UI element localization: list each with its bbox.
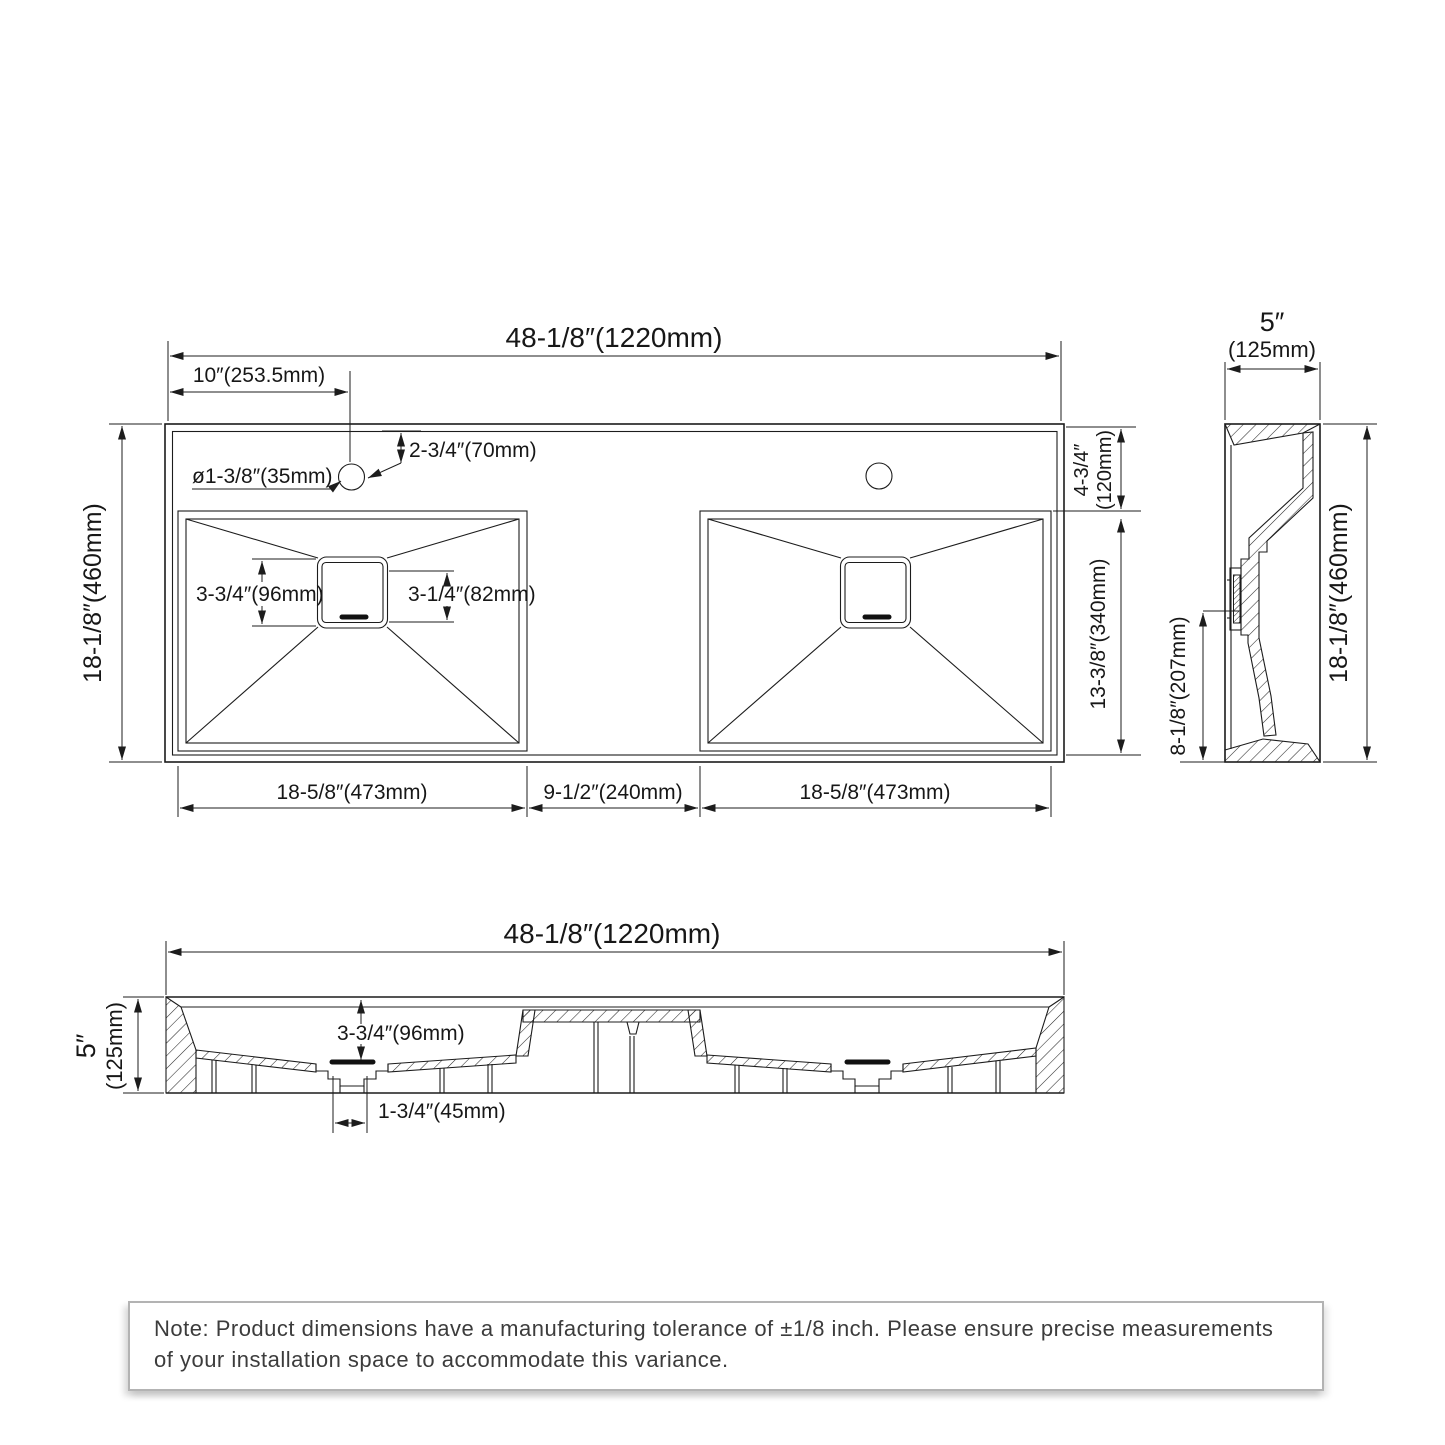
deck-depth-in-label: 4-3/4″ <box>1071 444 1093 497</box>
side-width-in-label: 5″ <box>1260 307 1285 337</box>
side-wall-section <box>1241 432 1313 736</box>
left-basin-width-label: 18-5/8″(473mm) <box>277 781 428 804</box>
front-basin-depth-label: 3-3/4″(96mm) <box>337 1022 465 1045</box>
front-left-wall <box>166 997 196 1093</box>
front-right-wall <box>1036 997 1064 1093</box>
right-basin <box>700 463 1051 751</box>
front-dimension-lines <box>138 952 1062 1123</box>
plan-overall-width-label: 48-1/8″(1220mm) <box>506 322 723 353</box>
side-bottom-rim <box>1225 739 1320 762</box>
deck-depth-mm-label: (120mm) <box>1094 430 1116 510</box>
front-center-divider <box>516 1010 707 1093</box>
tolerance-note-text: Note: Product dimensions have a manufact… <box>154 1316 1273 1372</box>
drain-inner-label: 3-1/4″(82mm) <box>408 583 536 606</box>
front-height-in-label: 5″ <box>71 1033 101 1058</box>
left-basin <box>178 464 527 751</box>
right-basin-width-label: 18-5/8″(473mm) <box>800 781 951 804</box>
plan-depth-label: 18-1/8″(460mm) <box>79 503 107 683</box>
side-section-view: 5″ (125mm) 18-1/8″(460mm) 8-1/8″(207mm) <box>1167 307 1377 762</box>
right-faucet-hole <box>866 463 892 489</box>
side-drain-height-label: 8-1/8″(207mm) <box>1167 616 1190 755</box>
hole-diameter-label: ø1-3/8″(35mm) <box>192 465 332 488</box>
front-height-mm-label: (125mm) <box>102 1002 127 1090</box>
front-drain-width-label: 1-3/4″(45mm) <box>378 1100 506 1123</box>
front-overall-width-label: 48-1/8″(1220mm) <box>504 918 721 949</box>
plan-extension-lines <box>109 341 1141 817</box>
tolerance-note: Note: Product dimensions have a manufact… <box>128 1301 1324 1391</box>
side-width-mm-label: (125mm) <box>1228 337 1316 362</box>
basin-front-depth-label: 13-3/8″(340mm) <box>1087 559 1110 710</box>
front-left-floor <box>196 1050 516 1093</box>
center-gap-label: 9-1/2″(240mm) <box>543 781 682 804</box>
front-section-view: 48-1/8″(1220mm) 5″ (125mm) 3-3/4″(96mm) … <box>71 918 1064 1133</box>
drain-outer-label: 3-3/4″(96mm) <box>196 583 324 606</box>
technical-drawing: 48-1/8″(1220mm) 10″(253.5mm) 2-3/4″(70mm… <box>0 0 1445 1445</box>
left-faucet-hole <box>339 464 365 490</box>
plan-view: 48-1/8″(1220mm) 10″(253.5mm) 2-3/4″(70mm… <box>79 322 1141 817</box>
front-right-floor <box>707 1048 1036 1093</box>
faucet-setback-label: 2-3/4″(70mm) <box>409 439 537 462</box>
side-height-label: 18-1/8″(460mm) <box>1325 503 1353 683</box>
faucet-offset-label: 10″(253.5mm) <box>193 364 325 387</box>
side-drain-fitting <box>1227 568 1241 630</box>
